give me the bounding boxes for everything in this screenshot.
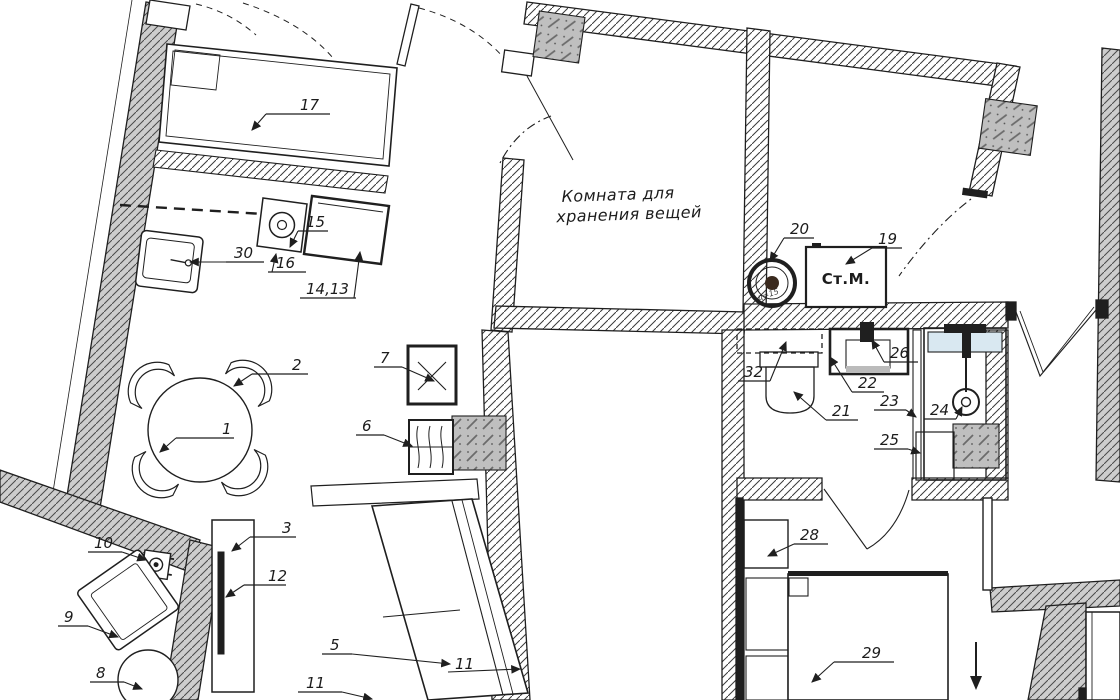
shower-drain-24-inner bbox=[962, 398, 971, 407]
svg-text:1: 1 bbox=[222, 420, 232, 438]
door-leaf-bedroom bbox=[824, 489, 867, 549]
bedroom-right-wall bbox=[983, 498, 992, 590]
svg-text:11: 11 bbox=[455, 655, 474, 673]
svg-text:5: 5 bbox=[330, 636, 340, 654]
vent-shaft-upper-right bbox=[979, 99, 1037, 156]
svg-text:19: 19 bbox=[878, 230, 897, 248]
svg-text:12: 12 bbox=[268, 567, 287, 585]
svg-text:26: 26 bbox=[890, 344, 909, 362]
washing-machine-15 bbox=[257, 198, 307, 252]
toilet-21-cistern bbox=[760, 352, 818, 367]
svg-text:21: 21 bbox=[832, 402, 851, 420]
direction-arrow-head bbox=[970, 676, 982, 690]
label-16: 16 bbox=[268, 254, 306, 272]
svg-text:9: 9 bbox=[64, 608, 74, 626]
door-arc-top-left-small bbox=[196, 4, 256, 35]
pouf-8 bbox=[118, 650, 178, 700]
door-jamb-bottom-right bbox=[1079, 688, 1086, 700]
wall-storage-bottom bbox=[494, 306, 746, 334]
svg-text:17: 17 bbox=[300, 96, 320, 114]
wall-niche-top bbox=[502, 50, 535, 76]
door-arc-upper-right bbox=[899, 199, 971, 276]
svg-text:28: 28 bbox=[800, 526, 819, 544]
svg-text:15: 15 bbox=[306, 213, 325, 231]
door-arc-storage bbox=[500, 116, 551, 163]
vent-shaft-storage-top bbox=[533, 11, 585, 63]
wall-bottom-right-vertical bbox=[1028, 603, 1086, 700]
svg-text:30: 30 bbox=[234, 244, 253, 262]
label-23: 23 bbox=[874, 392, 916, 417]
door-jamb-fold-right bbox=[1096, 300, 1108, 318]
storage-room-name-line2: хранения вещей bbox=[555, 202, 702, 226]
label-28: 28 bbox=[768, 526, 828, 556]
wall-stub-top-left bbox=[146, 0, 190, 30]
storage-room-name-line1: Комната для bbox=[561, 183, 675, 206]
svg-text:25: 25 bbox=[880, 431, 899, 449]
dining-table-1 bbox=[148, 378, 252, 482]
svg-text:16: 16 bbox=[276, 254, 295, 272]
svg-text:7: 7 bbox=[380, 349, 390, 367]
svg-text:22: 22 bbox=[858, 374, 877, 392]
door-arc-bedroom bbox=[867, 490, 909, 549]
wall-bath-bottom-right bbox=[912, 478, 1008, 500]
shower-drain-24-outer bbox=[953, 389, 979, 415]
svg-text:8: 8 bbox=[96, 664, 106, 682]
window-niche bbox=[1086, 612, 1120, 700]
folding-door-line-b bbox=[1020, 307, 1094, 372]
tv-12 bbox=[218, 552, 224, 654]
storage-room: Комната для хранения вещей bbox=[554, 182, 702, 226]
svg-text:14,13: 14,13 bbox=[306, 280, 349, 298]
label-6: 6 bbox=[356, 417, 412, 446]
svg-text:23: 23 bbox=[880, 392, 899, 410]
closet-cell-b bbox=[746, 656, 788, 700]
bed-29 bbox=[788, 574, 948, 700]
door-leaf-storage-top bbox=[527, 76, 573, 160]
cabinet-7 bbox=[408, 346, 456, 404]
vent-shaft-center bbox=[452, 416, 506, 470]
door-arc-top-middle bbox=[419, 8, 504, 58]
svg-text:3: 3 bbox=[282, 519, 292, 537]
svg-text:11: 11 bbox=[306, 674, 325, 692]
label-21: 21 bbox=[794, 392, 858, 420]
svg-text:29: 29 bbox=[862, 644, 881, 662]
floor-plan-drawing: Комната для хранения вещей д=15 Ст.М. bbox=[0, 0, 1120, 700]
sink-22-base bbox=[846, 366, 890, 372]
bed-29-headboard bbox=[788, 571, 948, 576]
vent-shaft-bathroom bbox=[953, 424, 999, 468]
closet-cell-a bbox=[746, 578, 788, 650]
svg-text:24: 24 bbox=[930, 401, 949, 419]
bedroom bbox=[744, 520, 982, 700]
svg-text:10: 10 bbox=[94, 534, 113, 552]
wall-stub-bed-right bbox=[397, 4, 419, 66]
svg-text:20: 20 bbox=[790, 220, 809, 238]
label-11-left: 11 bbox=[298, 674, 372, 699]
wall-far-right bbox=[1096, 48, 1120, 482]
svg-text:6: 6 bbox=[362, 417, 372, 435]
door-jamb-fold-left bbox=[1006, 302, 1016, 320]
label-32: 32 bbox=[738, 342, 786, 381]
valve-10-dial-center-icon bbox=[154, 562, 159, 567]
door-arc-top-left bbox=[243, 3, 333, 58]
shower-mixer-bar-icon bbox=[944, 324, 986, 333]
washing-machine-19-label: Ст.М. bbox=[822, 270, 871, 288]
wall-bath-bottom-left bbox=[737, 478, 822, 500]
washing-machine-19-tick bbox=[812, 243, 821, 248]
svg-text:32: 32 bbox=[744, 363, 763, 381]
bath-cabinet-25 bbox=[916, 432, 954, 480]
bedroom-left-wall bbox=[736, 498, 743, 700]
svg-text:2: 2 bbox=[292, 356, 302, 374]
towel-dryer-32 bbox=[737, 329, 822, 353]
floor-plan-canvas: Комната для хранения вещей д=15 Ст.М. bbox=[0, 0, 1120, 700]
partition-23 bbox=[913, 330, 921, 478]
wall-storage-right bbox=[743, 28, 770, 316]
nightstand-28 bbox=[744, 520, 788, 568]
shower-mixer-stem-icon bbox=[962, 332, 971, 358]
faucet-26-icon bbox=[860, 322, 874, 342]
